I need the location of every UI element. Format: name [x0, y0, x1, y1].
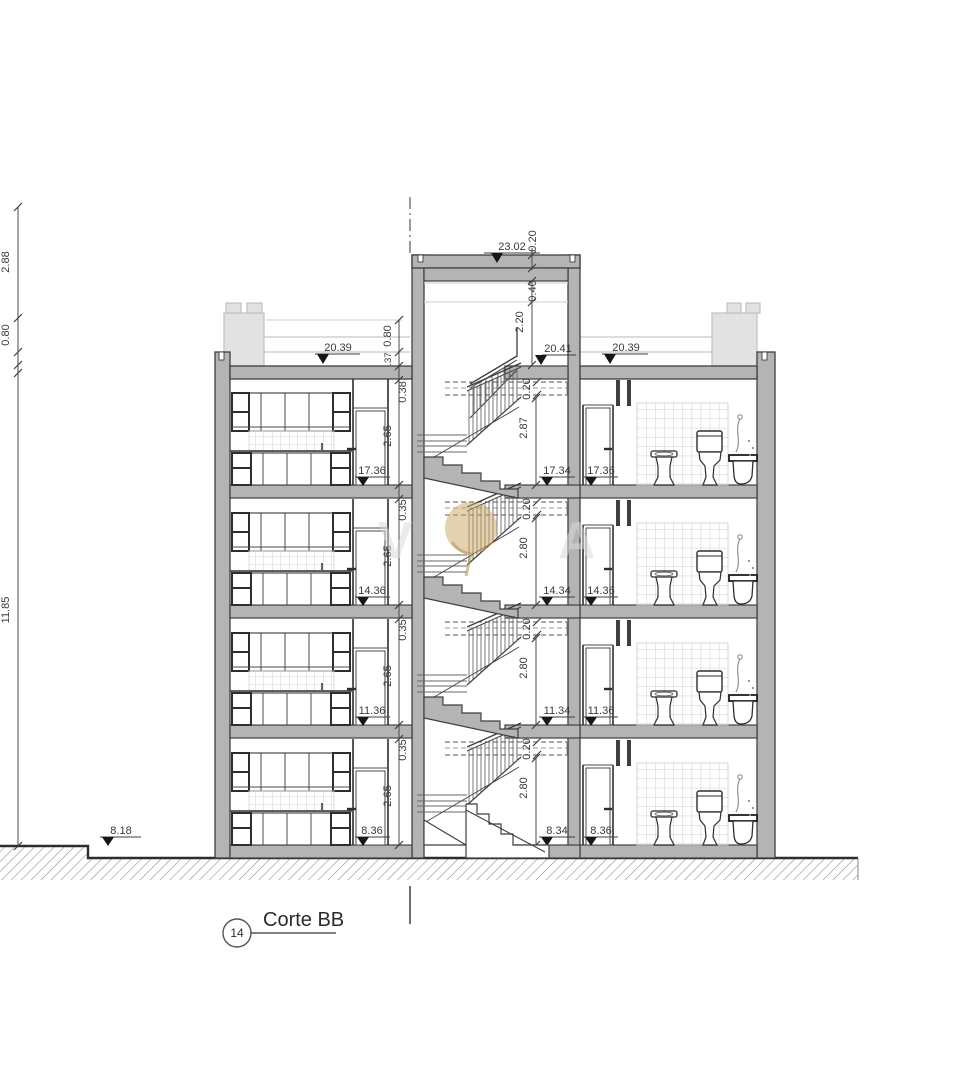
- level-left-4: 17.36: [358, 465, 386, 477]
- roof-slab-right: [580, 366, 757, 379]
- dim-tower-headroom: 2.20: [514, 311, 526, 332]
- rooftop-elements: [224, 303, 760, 366]
- watermark: V A: [378, 502, 596, 576]
- left-exterior-wall: [215, 352, 230, 858]
- tower-roof-slab: [424, 268, 568, 281]
- dim-tower-top-level: 23.02: [498, 241, 526, 253]
- dim-left-mid: 0.80: [0, 324, 12, 345]
- right-floor-4: [580, 380, 757, 498]
- level-right-4: 17.36: [587, 465, 615, 477]
- right-floor-2: [580, 620, 757, 738]
- level-right-1: 8.36: [590, 825, 611, 837]
- right-exterior-wall: [757, 352, 775, 858]
- ground-level-marker: 8.18: [100, 825, 141, 846]
- dim-roof-railing: 0.80: [382, 325, 394, 346]
- dim-stair-flight: 2.80: [518, 777, 530, 798]
- watermark-logo: [445, 502, 497, 554]
- drawing-title: Corte BB: [263, 909, 344, 931]
- dim-landing-slab: 0.20: [521, 738, 533, 759]
- level-stair-2: 11.34: [544, 705, 571, 717]
- drawing-number: 14: [230, 926, 244, 940]
- dim-stair-flight-top: 2.87: [518, 417, 530, 438]
- dim-room-height: 2.65: [382, 785, 394, 806]
- level-stair-1: 8.34: [546, 825, 567, 837]
- dim-landing-slab: 0.20: [521, 498, 533, 519]
- section-drawing-canvas: 23.02 0.20 0.40 2.20 20.41 20.39 20.39 0…: [0, 0, 967, 1080]
- dim-room-height: 2.65: [382, 425, 394, 446]
- level-left-3: 14.36: [358, 585, 386, 597]
- title-block: 14 Corte BB: [223, 909, 344, 947]
- dim-floor-slab: 0.35: [397, 619, 409, 640]
- core-left-wall: [412, 255, 424, 858]
- level-tower-landing: 20.41: [544, 343, 572, 355]
- dim-tower-roof: 0.40: [527, 280, 539, 301]
- level-left-1: 8.36: [361, 825, 382, 837]
- dim-room-height: 2.65: [382, 665, 394, 686]
- tower-dimensions: 23.02 0.20 0.40 2.20 20.41: [484, 230, 576, 369]
- level-stair-4: 17.34: [543, 465, 571, 477]
- watermark-letter: A: [558, 512, 596, 570]
- level-stair-3: 14.34: [543, 585, 571, 597]
- dim-landing-slab: 0.20: [521, 378, 533, 399]
- roof-level-markers: 20.39 20.39: [315, 342, 648, 364]
- dim-stair-flight: 2.80: [518, 537, 530, 558]
- far-left-dimension-line: 2.88 0.80 11.85: [0, 203, 22, 850]
- dim-landing-slab: 0.20: [521, 618, 533, 639]
- dim-left-upper: 2.88: [0, 251, 12, 272]
- level-right-2: 11.36: [588, 705, 615, 717]
- level-roof-right: 20.39: [612, 342, 640, 354]
- right-floor-1: [580, 740, 757, 858]
- building-section-svg: 23.02 0.20 0.40 2.20 20.41 20.39 20.39 0…: [0, 0, 967, 1080]
- roof-slab-left: [230, 366, 412, 379]
- dim-left-total: 11.85: [0, 597, 12, 624]
- right-floor-3: [580, 500, 757, 618]
- dim-parapet: .37: [383, 352, 394, 365]
- dim-floor-slab: 0.35: [397, 739, 409, 760]
- dim-stair-flight: 2.80: [518, 657, 530, 678]
- level-ground: 8.18: [110, 825, 131, 837]
- dim-roof-slab: 0.38: [397, 381, 409, 402]
- level-left-2: 11.36: [359, 705, 386, 717]
- level-right-3: 14.36: [587, 585, 615, 597]
- watermark-letter: V: [378, 512, 413, 570]
- right-chimney: [712, 313, 757, 366]
- level-roof-left: 20.39: [324, 342, 352, 354]
- dim-tower-coping: 0.20: [527, 230, 539, 251]
